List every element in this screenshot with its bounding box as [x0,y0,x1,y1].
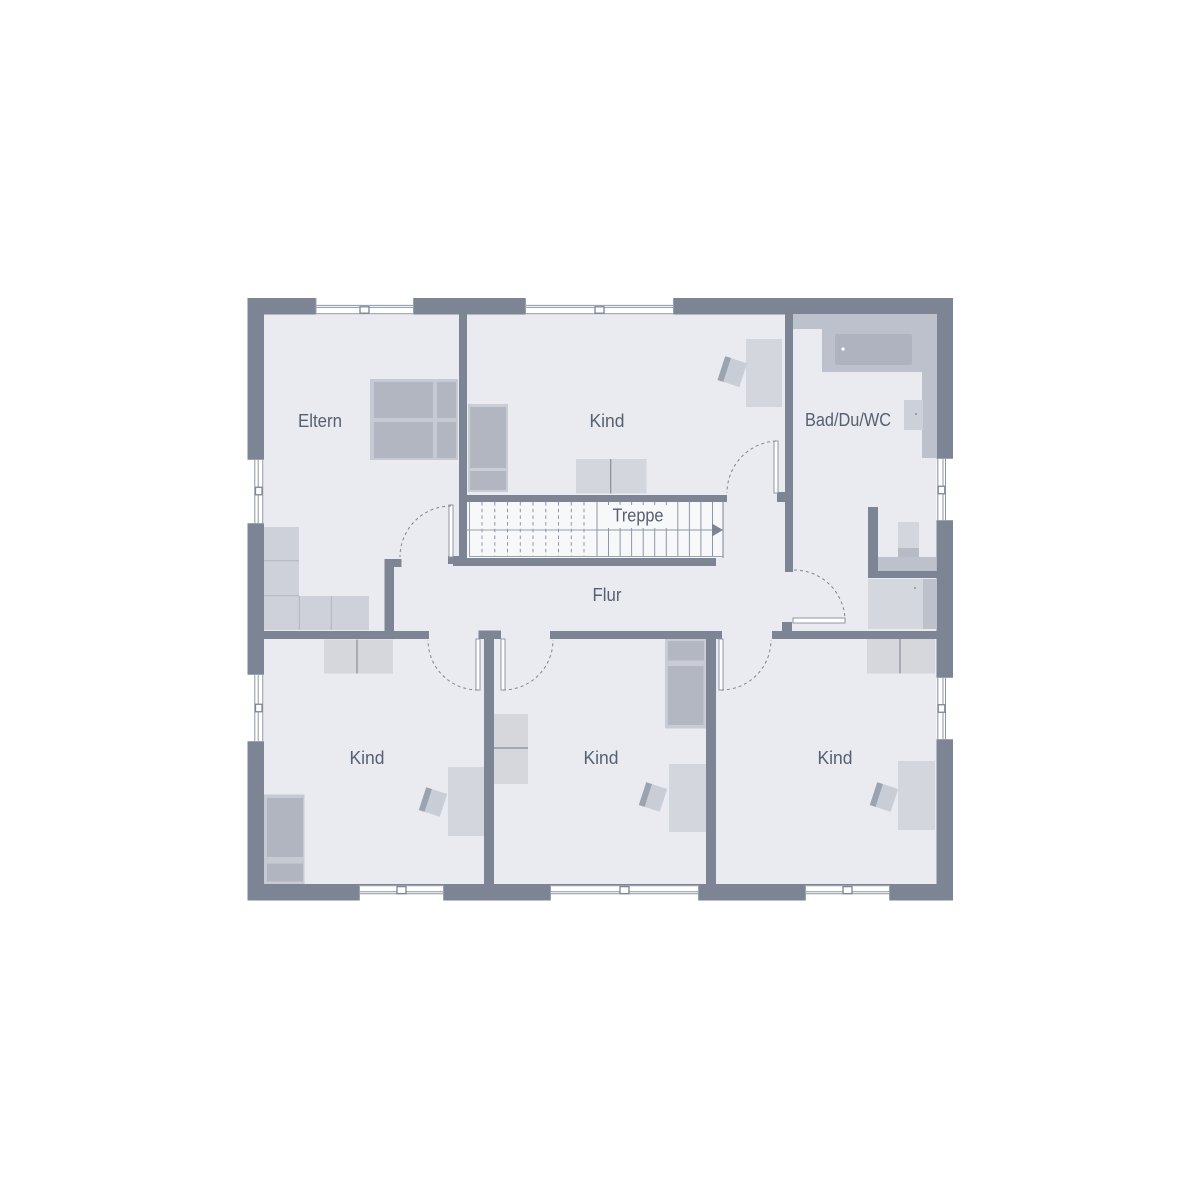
svg-text:Eltern: Eltern [298,411,342,431]
svg-text:Kind: Kind [818,748,853,768]
svg-text:Kind: Kind [350,748,385,768]
svg-text:Flur: Flur [593,585,622,605]
svg-text:Bad/Du/WC: Bad/Du/WC [805,410,891,430]
svg-text:Treppe: Treppe [613,506,664,526]
svg-text:Kind: Kind [590,411,625,431]
svg-text:Kind: Kind [584,748,619,768]
